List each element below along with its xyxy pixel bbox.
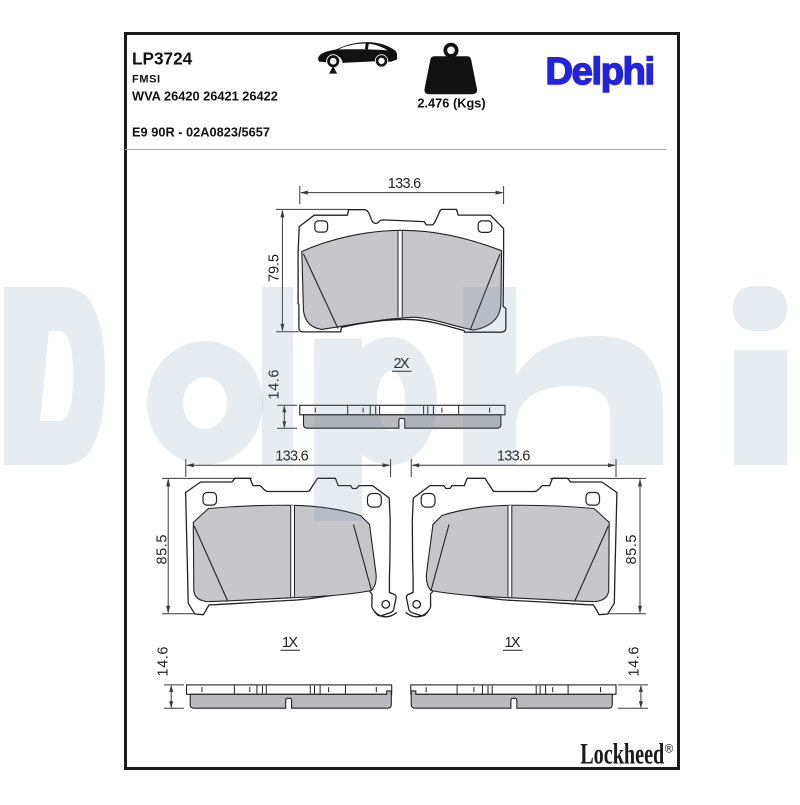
svg-text:®: ® [665, 744, 674, 756]
svg-text:Delphi: Delphi [546, 51, 654, 93]
svg-text:85.5: 85.5 [155, 535, 171, 565]
svg-text:FMSI: FMSI [132, 74, 161, 86]
svg-text:1X: 1X [505, 635, 521, 651]
svg-text:133.6: 133.6 [388, 176, 422, 192]
svg-text:E9 90R - 02A0823/5657: E9 90R - 02A0823/5657 [132, 125, 270, 140]
svg-text:85.5: 85.5 [624, 535, 640, 565]
svg-text:2.476 (Kgs): 2.476 (Kgs) [417, 96, 485, 111]
svg-text:1X: 1X [282, 635, 298, 651]
svg-text:14.6: 14.6 [156, 647, 172, 677]
svg-text:Lockheed: Lockheed [580, 738, 664, 771]
svg-text:14.6: 14.6 [627, 647, 643, 677]
svg-text:79.5: 79.5 [267, 254, 283, 282]
svg-text:LP3724: LP3724 [132, 49, 193, 69]
svg-text:WVA 26420 26421 26422: WVA 26420 26421 26422 [132, 89, 278, 104]
